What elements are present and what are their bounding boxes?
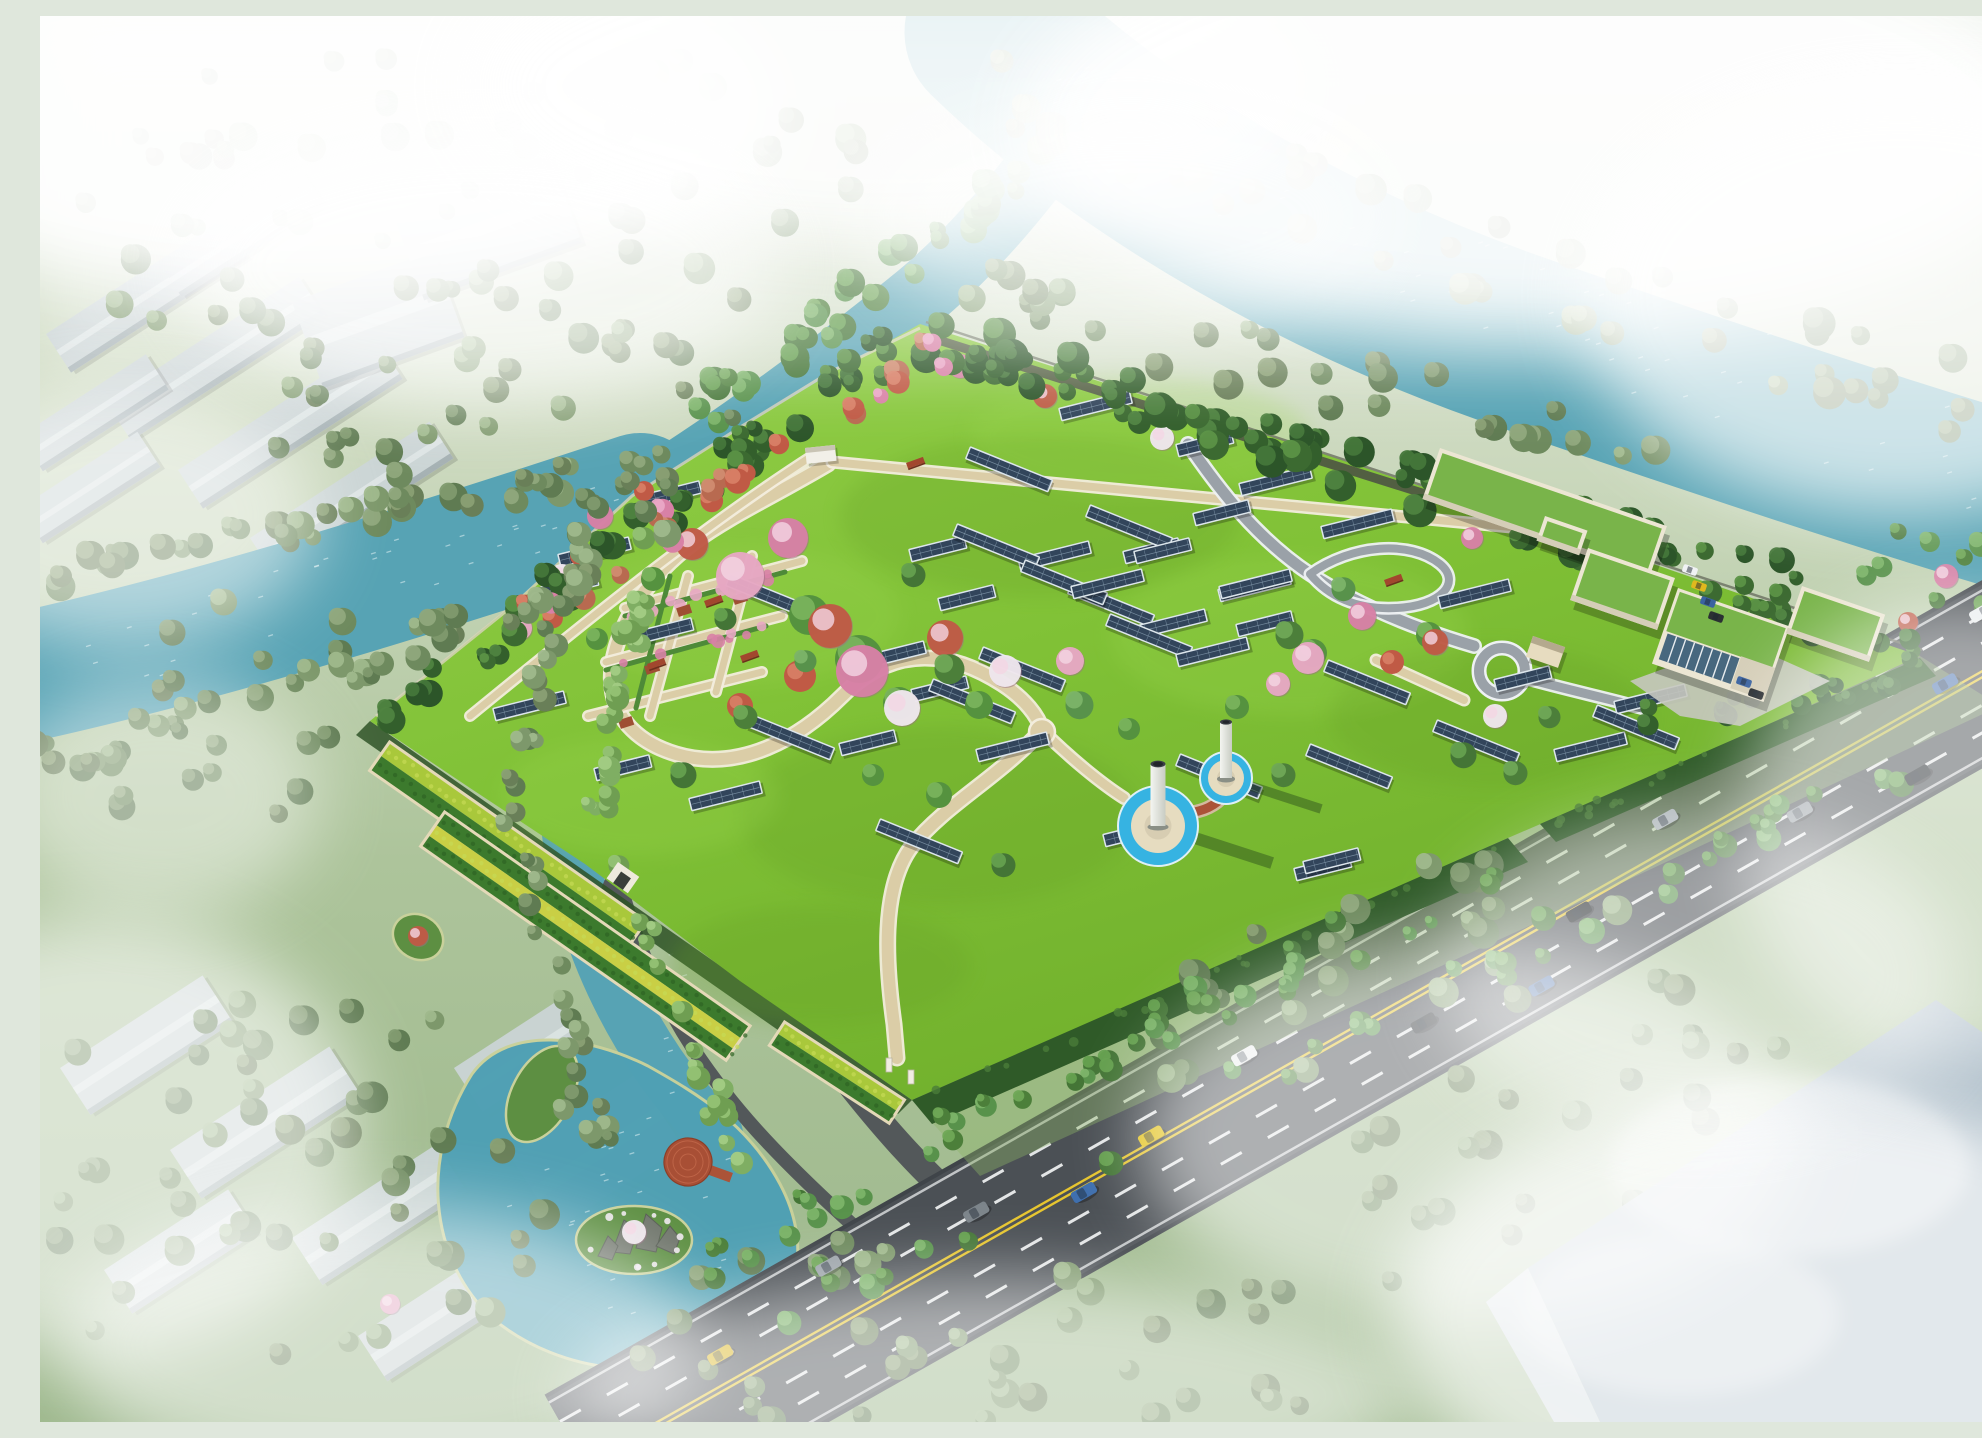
site-plan-svg <box>40 16 1982 1422</box>
rendering-canvas <box>40 16 1982 1422</box>
aerial-site-rendering <box>40 16 1982 1422</box>
